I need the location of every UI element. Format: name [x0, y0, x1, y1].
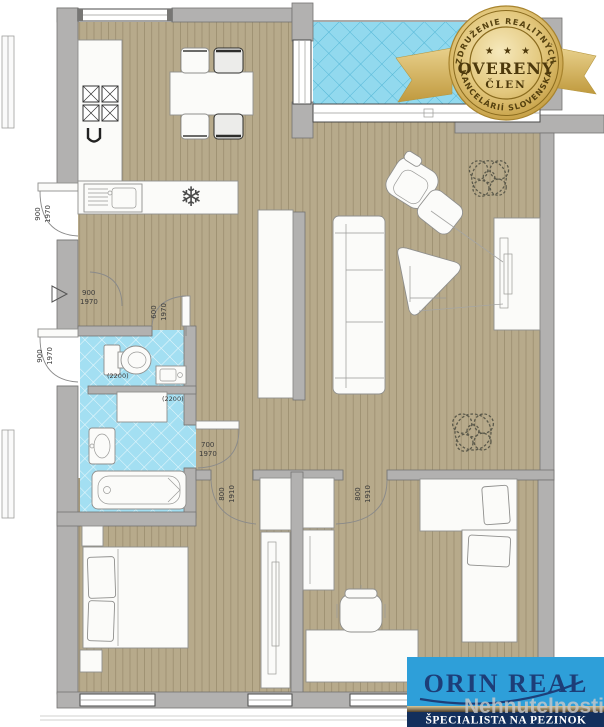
door-leaf-exterior-lower — [38, 329, 78, 337]
portal-watermark: Nehnutelnosti — [464, 695, 604, 718]
svg-text:900: 900 — [82, 289, 95, 297]
hall-wardrobe — [258, 210, 293, 398]
bath-sink-icon — [89, 428, 115, 464]
svg-text:1970: 1970 — [199, 450, 217, 458]
label-door-bathroom: 700 1970 — [199, 441, 217, 458]
badge-stars: ★ ★ ★ — [485, 46, 533, 57]
partition-panel — [293, 212, 305, 400]
wc-sink-icon — [156, 366, 186, 384]
sink-icon — [84, 184, 142, 212]
svg-text:900: 900 — [36, 349, 44, 362]
label-wc-ceiling-height: (2200) — [107, 372, 129, 380]
label-bathroom-ceiling-height: (2200) — [162, 395, 184, 403]
svg-text:1970: 1970 — [80, 298, 98, 306]
agency-logo: ORIN REAL ŠPECIALISTA NA PEZINOK Nehnute… — [407, 657, 604, 727]
dining-table — [170, 72, 253, 115]
pillow — [467, 535, 511, 567]
svg-text:1910: 1910 — [228, 485, 236, 503]
door-leaf-exterior-upper — [38, 183, 78, 191]
svg-text:800: 800 — [218, 487, 226, 500]
svg-text:1910: 1910 — [364, 485, 372, 503]
washing-machine — [117, 392, 167, 422]
svg-text:600: 600 — [150, 305, 158, 318]
badge-title: OVERENÝ — [458, 58, 555, 78]
floor-plan-image: ❄ — [0, 0, 604, 727]
fridge-snowflake-icon: ❄ — [180, 182, 203, 213]
door-leaf-wc — [182, 296, 190, 326]
wardrobe — [261, 532, 290, 688]
door-leaf-bathroom — [196, 421, 239, 429]
sofa — [333, 216, 385, 394]
pillow — [87, 557, 115, 599]
svg-text:1970: 1970 — [44, 205, 52, 223]
door-leaf-bedroom-right — [303, 478, 334, 528]
balcony-door — [293, 40, 311, 104]
nightstand — [82, 526, 103, 546]
svg-text:900: 900 — [34, 207, 42, 220]
svg-text:800: 800 — [354, 487, 362, 500]
bathtub-icon — [92, 471, 186, 509]
svg-text:1970: 1970 — [160, 303, 168, 321]
label-door-entry: 900 1970 — [80, 289, 98, 306]
svg-text:1970: 1970 — [46, 347, 54, 365]
floor-plan-svg: ❄ — [0, 0, 604, 727]
svg-text:700: 700 — [201, 441, 214, 449]
pillow — [482, 485, 511, 525]
nightstand — [80, 650, 102, 672]
logo-brand-text: ORIN REAL — [424, 669, 589, 698]
wardrobe — [303, 530, 334, 590]
pillow — [87, 601, 114, 642]
toilet-icon — [104, 345, 151, 375]
desk — [306, 630, 418, 682]
door-leaf-bedroom-left — [260, 478, 291, 530]
badge-subtitle: ČLEN — [485, 77, 526, 91]
